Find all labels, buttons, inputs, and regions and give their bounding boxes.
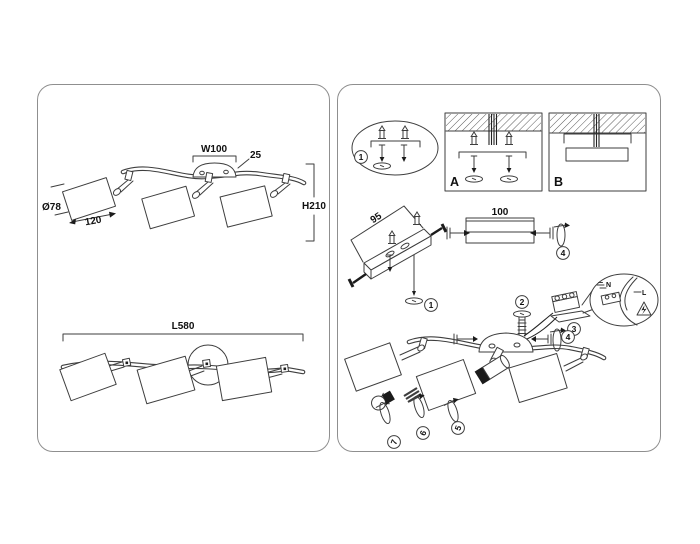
spotlight-shade bbox=[509, 353, 567, 402]
neutral-label: N bbox=[606, 282, 611, 289]
top-view-fixture bbox=[60, 345, 303, 404]
flathead-screw-icon bbox=[431, 228, 442, 235]
option-b-label: B bbox=[554, 175, 563, 189]
hardware-kit-detail: 1 bbox=[352, 121, 438, 175]
step-1-number: 1 bbox=[429, 300, 434, 310]
step-4-number: 4 bbox=[561, 248, 566, 258]
mounting-option-b: B bbox=[549, 113, 646, 191]
dimensions-panel: W100 25 Ø78 120 H210 L580 bbox=[37, 84, 330, 452]
live-label: L bbox=[642, 290, 647, 297]
shade-length-label: 120 bbox=[84, 215, 103, 229]
flathead-screw-head bbox=[349, 279, 353, 287]
fixture-height-label: H210 bbox=[302, 201, 326, 212]
instruction-sheet: W100 25 Ø78 120 H210 L580 bbox=[0, 0, 700, 544]
bracket-length-label: 95 bbox=[369, 211, 385, 227]
dimension-drawing: W100 25 Ø78 120 H210 L580 bbox=[38, 85, 329, 451]
total-length-label: L580 bbox=[172, 321, 195, 332]
threaded-rod bbox=[518, 317, 526, 336]
spotlight-shade bbox=[345, 343, 402, 391]
connector-length-label: 100 bbox=[492, 207, 509, 218]
pivot-joint bbox=[282, 173, 290, 183]
right-spotlight bbox=[509, 347, 589, 402]
canopy-front bbox=[193, 163, 236, 177]
canopy-height-label: 25 bbox=[250, 150, 262, 161]
spotlight-shade bbox=[62, 178, 115, 221]
connector-tube: 100 4 bbox=[447, 207, 570, 259]
installation-panel: 1 A bbox=[337, 84, 661, 452]
canopy-width-label: W100 bbox=[201, 144, 228, 155]
fixture-assembly: 4 bbox=[345, 328, 604, 449]
bulb-icon bbox=[369, 389, 396, 413]
wiring-assembly: 2 3 bbox=[514, 274, 659, 339]
shade-diameter-label: Ø78 bbox=[42, 202, 61, 213]
wiring-detail-zoom: N L bbox=[590, 274, 658, 326]
canopy-plate bbox=[566, 148, 628, 161]
step-1-number: 1 bbox=[359, 152, 364, 162]
wall-anchor-icon bbox=[388, 231, 396, 244]
spotlight-shade bbox=[142, 186, 195, 228]
step-4-number: 4 bbox=[566, 332, 571, 342]
mounting-bracket-3d: 1 95 bbox=[349, 206, 446, 311]
installation-drawing: 1 A bbox=[338, 85, 660, 451]
washer-icon bbox=[406, 298, 423, 304]
spotlight-shade bbox=[60, 353, 116, 400]
mounting-option-a: A bbox=[445, 113, 542, 191]
spotlight-shade bbox=[416, 360, 475, 411]
flathead-screw-head bbox=[442, 224, 446, 232]
step-2-number: 2 bbox=[520, 297, 525, 307]
pivot-joint bbox=[205, 173, 212, 183]
rotate-arrow-icon bbox=[554, 223, 570, 247]
washer-icon bbox=[514, 311, 531, 317]
flathead-screw-icon bbox=[353, 274, 366, 283]
left-spotlight bbox=[345, 337, 428, 391]
ceiling-hatch bbox=[550, 114, 645, 133]
option-a-label: A bbox=[450, 175, 459, 189]
spotlight-shade bbox=[220, 186, 272, 227]
